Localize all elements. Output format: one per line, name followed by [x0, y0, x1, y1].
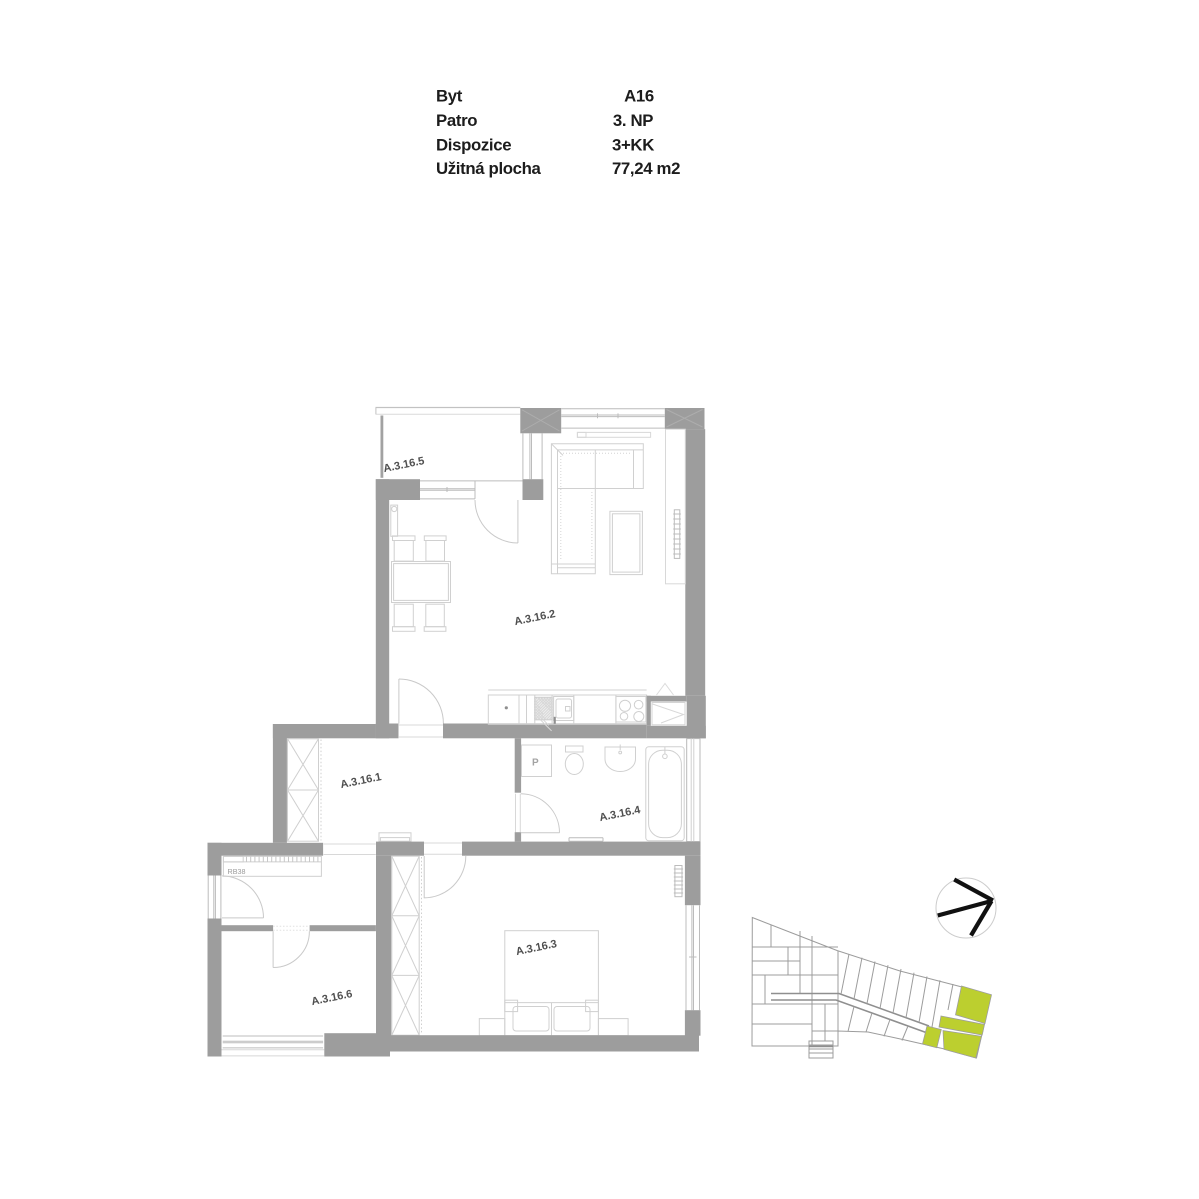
svg-text:Dispozice: Dispozice	[436, 136, 511, 155]
svg-text:Patro: Patro	[436, 111, 477, 130]
svg-text:3+KK: 3+KK	[612, 136, 654, 155]
svg-text:77,24 m2: 77,24 m2	[612, 159, 680, 178]
svg-text:A16: A16	[624, 87, 654, 106]
svg-text:Užitná plocha: Užitná plocha	[436, 159, 542, 178]
svg-text:P: P	[532, 758, 539, 769]
svg-text:RB38: RB38	[228, 867, 246, 876]
svg-text:3. NP: 3. NP	[613, 111, 653, 130]
svg-text:Byt: Byt	[436, 87, 463, 106]
